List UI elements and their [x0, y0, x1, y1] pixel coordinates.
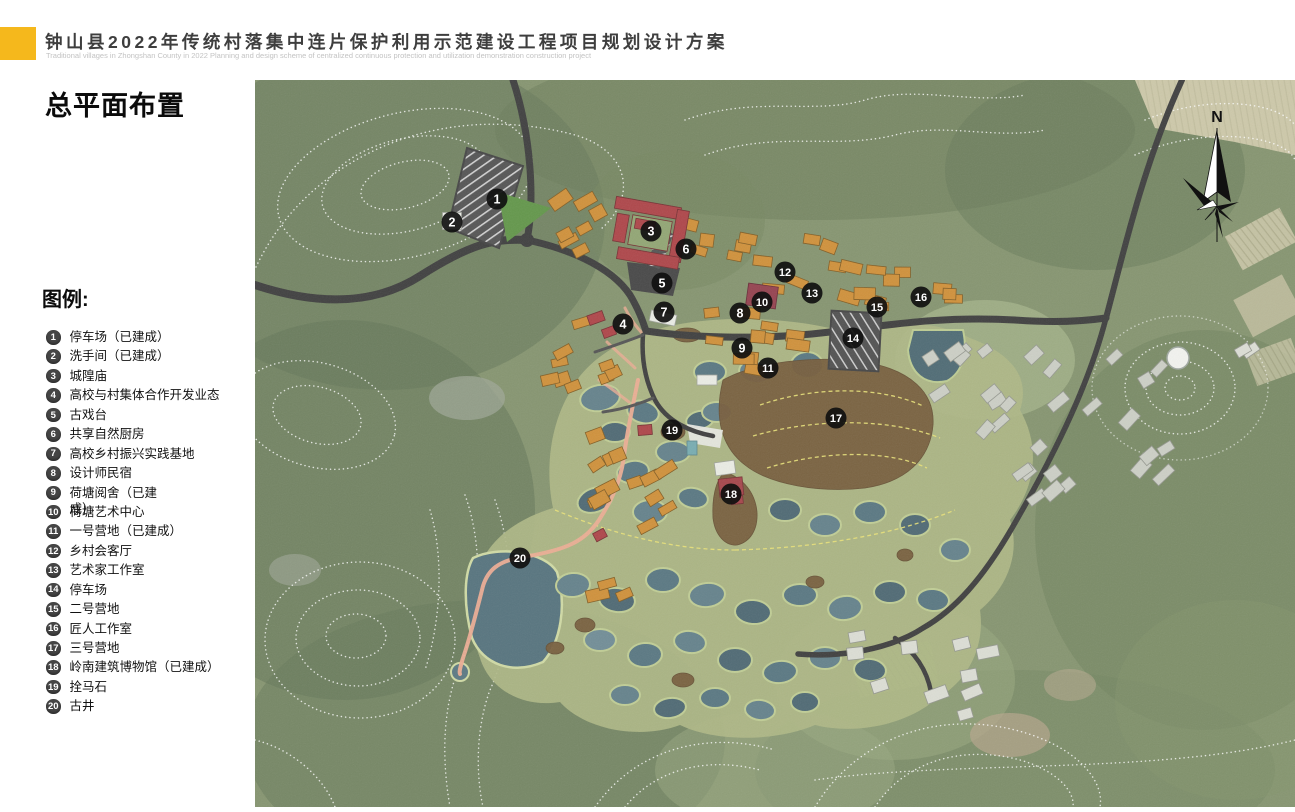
- legend-item-label: 停车场（已建成）: [70, 329, 170, 345]
- legend-item-number: 15: [46, 602, 61, 617]
- svg-text:12: 12: [779, 267, 791, 279]
- legend-item-12: 12乡村会客厅: [46, 543, 252, 562]
- legend-item-8: 8设计师民宿: [46, 465, 252, 484]
- legend-item-number: 17: [46, 641, 61, 656]
- legend-item-label: 艺术家工作室: [70, 562, 145, 578]
- legend-item-number: 2: [46, 349, 61, 364]
- legend-item-3: 3城隍庙: [46, 368, 252, 387]
- svg-text:9: 9: [739, 342, 746, 356]
- map-marker-14: 14: [843, 328, 864, 349]
- legend-item-label: 三号营地: [70, 640, 120, 656]
- map-marker-10: 10: [752, 292, 773, 313]
- legend-item-label: 荷塘阅舍（已建成）: [70, 485, 168, 517]
- legend-item-number: 3: [46, 369, 61, 384]
- legend-item-label: 古井: [70, 698, 95, 714]
- legend-item-number: 7: [46, 447, 61, 462]
- legend-item-13: 13艺术家工作室: [46, 562, 252, 581]
- legend-item-label: 二号营地: [70, 601, 120, 617]
- legend-item-1: 1停车场（已建成）: [46, 329, 252, 348]
- legend-item-number: 14: [46, 583, 61, 598]
- legend-item-6: 6共享自然厨房: [46, 426, 252, 445]
- legend-item-label: 共享自然厨房: [70, 426, 145, 442]
- legend-item-label: 乡村会客厅: [70, 543, 133, 559]
- map-marker-9: 9: [732, 338, 753, 359]
- legend-item-number: 10: [46, 505, 61, 520]
- legend-item-14: 14停车场: [46, 582, 252, 601]
- legend-item-number: 9: [46, 486, 61, 501]
- map-marker-1: 1: [487, 189, 508, 210]
- section-title: 总平面布置: [45, 84, 185, 123]
- map-marker-3: 3: [641, 221, 662, 242]
- legend-item-7: 7高校乡村振兴实践基地: [46, 446, 252, 465]
- legend-item-label: 停车场: [70, 582, 108, 598]
- svg-text:7: 7: [661, 306, 668, 320]
- legend-item-label: 一号营地（已建成）: [70, 523, 183, 539]
- svg-text:2: 2: [449, 216, 456, 230]
- plan-sheet: 钟山县2022年传统村落集中连片保护利用示范建设工程项目规划设计方案 Tradi…: [0, 0, 1295, 807]
- svg-text:1: 1: [494, 193, 501, 207]
- map-marker-16: 16: [911, 287, 932, 308]
- legend-item-number: 1: [46, 330, 61, 345]
- legend-item-11: 11一号营地（已建成）: [46, 523, 252, 542]
- accent-block: [0, 27, 36, 60]
- legend-item-18: 18岭南建筑博物馆（已建成）: [46, 659, 252, 678]
- legend-item-number: 6: [46, 427, 61, 442]
- page-subtitle: Traditional villages in Zhongshan County…: [46, 51, 591, 60]
- legend-title: 图例:: [42, 283, 89, 312]
- legend-item-label: 高校与村集体合作开发业态: [70, 387, 220, 403]
- legend-item-label: 高校乡村振兴实践基地: [70, 446, 195, 462]
- legend-item-number: 13: [46, 563, 61, 578]
- site-plan-map: N 1234567891011121314151617181920: [255, 80, 1295, 807]
- svg-text:11: 11: [762, 363, 774, 375]
- legend-item-number: 5: [46, 408, 61, 423]
- svg-text:10: 10: [756, 297, 768, 309]
- map-marker-11: 11: [758, 358, 779, 379]
- legend-item-label: 设计师民宿: [70, 465, 133, 481]
- legend-item-17: 17三号营地: [46, 640, 252, 659]
- legend-item-4: 4高校与村集体合作开发业态: [46, 387, 252, 406]
- legend-item-number: 19: [46, 680, 61, 695]
- legend-item-15: 15二号营地: [46, 601, 252, 620]
- legend-list: 1停车场（已建成）2洗手间（已建成）3城隍庙4高校与村集体合作开发业态5古戏台6…: [46, 329, 252, 718]
- map-marker-8: 8: [730, 303, 751, 324]
- map-marker-6: 6: [676, 239, 697, 260]
- svg-text:16: 16: [915, 292, 927, 304]
- legend-item-label: 洗手间（已建成）: [70, 348, 170, 364]
- svg-text:13: 13: [806, 288, 818, 300]
- map-marker-12: 12: [775, 262, 796, 283]
- svg-text:20: 20: [514, 553, 526, 565]
- svg-text:17: 17: [830, 413, 842, 425]
- legend-item-19: 19拴马石: [46, 679, 252, 698]
- legend-item-label: 古戏台: [70, 407, 108, 423]
- legend-item-label: 城隍庙: [70, 368, 108, 384]
- legend-item-number: 11: [46, 524, 61, 539]
- svg-text:19: 19: [666, 425, 678, 437]
- legend-item-20: 20古井: [46, 698, 252, 717]
- legend-item-5: 5古戏台: [46, 407, 252, 426]
- map-marker-19: 19: [662, 420, 683, 441]
- legend-item-number: 12: [46, 544, 61, 559]
- map-marker-18: 18: [721, 484, 742, 505]
- svg-text:6: 6: [683, 243, 690, 257]
- legend-item-number: 16: [46, 622, 61, 637]
- svg-text:14: 14: [847, 333, 860, 345]
- legend-item-2: 2洗手间（已建成）: [46, 348, 252, 367]
- map-marker-15: 15: [867, 297, 888, 318]
- legend-item-9: 9荷塘阅舍（已建成）: [46, 485, 252, 504]
- legend-item-label: 岭南建筑博物馆（已建成）: [70, 659, 220, 675]
- map-marker-5: 5: [652, 273, 673, 294]
- legend-item-label: 匠人工作室: [70, 621, 133, 637]
- svg-text:4: 4: [620, 318, 627, 332]
- photo-grain: [255, 80, 1295, 807]
- svg-text:18: 18: [725, 489, 737, 501]
- legend-item-number: 8: [46, 466, 61, 481]
- svg-text:8: 8: [737, 307, 744, 321]
- legend-item-label: 拴马石: [70, 679, 108, 695]
- compass-label: N: [1211, 109, 1223, 126]
- map-marker-4: 4: [613, 314, 634, 335]
- map-marker-7: 7: [654, 302, 675, 323]
- legend-item-number: 4: [46, 388, 61, 403]
- site-plan-svg: N 1234567891011121314151617181920: [255, 80, 1295, 807]
- legend-item-number: 18: [46, 660, 61, 675]
- map-marker-2: 2: [442, 212, 463, 233]
- svg-text:5: 5: [659, 277, 666, 291]
- map-marker-17: 17: [826, 408, 847, 429]
- legend-item-number: 20: [46, 699, 61, 714]
- map-marker-13: 13: [802, 283, 823, 304]
- svg-text:3: 3: [648, 225, 655, 239]
- map-marker-20: 20: [510, 548, 531, 569]
- svg-text:15: 15: [871, 302, 883, 314]
- legend-item-16: 16匠人工作室: [46, 621, 252, 640]
